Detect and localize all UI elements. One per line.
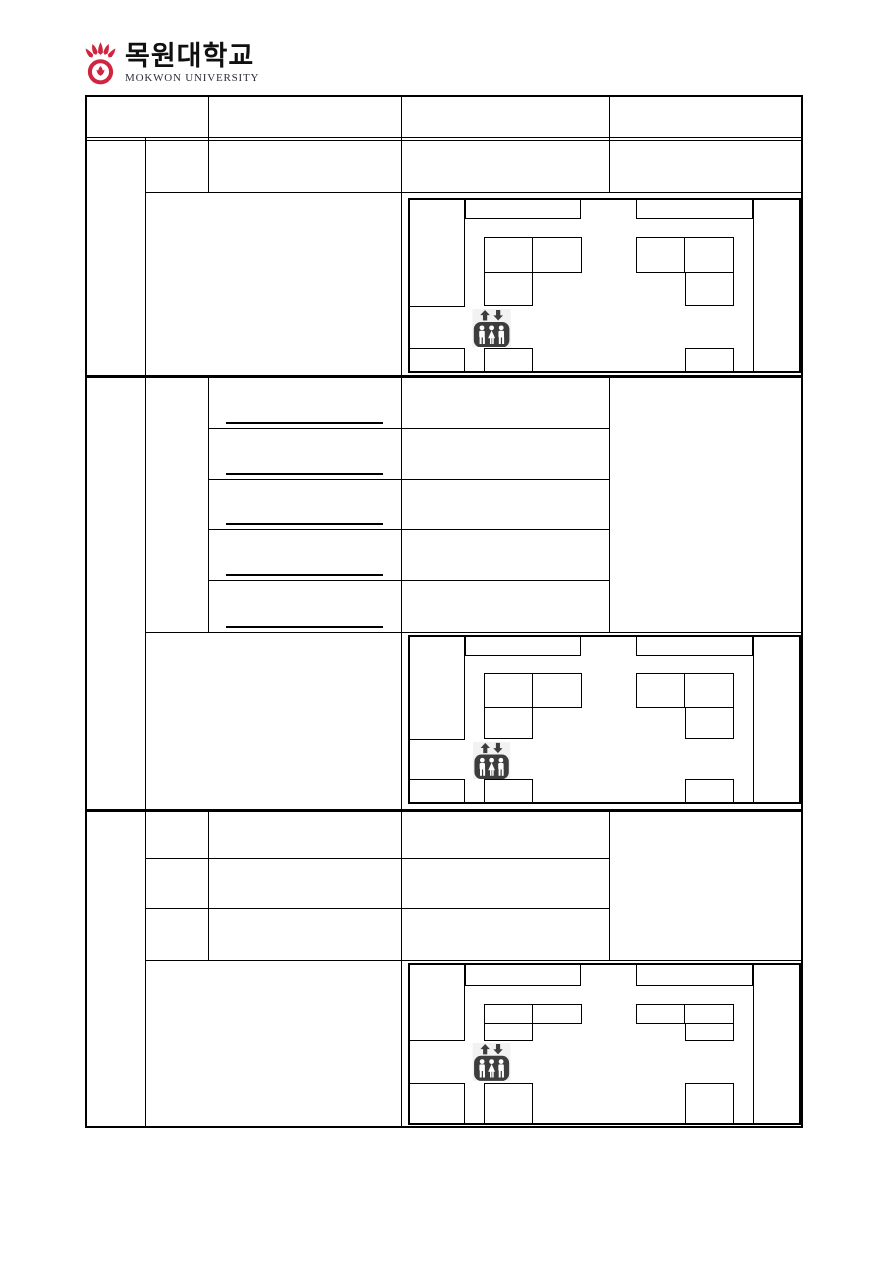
- section-separator-line: [87, 375, 801, 378]
- room-box: [484, 1023, 533, 1041]
- room-box: [685, 707, 734, 739]
- blank-underline-field: [226, 574, 383, 576]
- room-box: [484, 673, 533, 708]
- room-box: [484, 707, 533, 739]
- room-box: [636, 637, 752, 656]
- room-box: [484, 1083, 533, 1123]
- elevator-icon: [471, 309, 512, 347]
- blank-underline-field: [226, 523, 383, 525]
- room-box: [636, 237, 684, 273]
- elevator-icon: [471, 1043, 512, 1081]
- room-box: [636, 673, 684, 708]
- room-box: [753, 637, 799, 802]
- room-box: [636, 200, 752, 219]
- room-box: [410, 1083, 465, 1123]
- university-name-korean: 목원대학교: [125, 42, 259, 70]
- section-separator-line: [87, 809, 801, 812]
- blank-underline-field: [226, 473, 383, 475]
- room-box: [753, 200, 799, 371]
- header-separator-line: [87, 137, 801, 138]
- room-box: [685, 348, 734, 372]
- floor-plan-1: [408, 198, 801, 373]
- grid-line: [145, 908, 610, 909]
- room-box: [410, 779, 465, 802]
- grid-line: [609, 375, 610, 632]
- grid-line: [208, 529, 610, 530]
- room-box: [410, 965, 465, 1041]
- room-box: [484, 348, 533, 372]
- room-box: [484, 1004, 533, 1024]
- grid-line: [145, 192, 801, 193]
- room-box: [484, 273, 533, 306]
- floor-plan-3: [408, 963, 801, 1125]
- grid-line: [145, 960, 801, 961]
- grid-line: [208, 97, 209, 192]
- blank-underline-field: [226, 422, 383, 424]
- grid-line: [609, 97, 610, 192]
- grid-line: [609, 809, 610, 960]
- grid-line: [401, 97, 402, 1126]
- room-box: [465, 965, 581, 986]
- room-box: [685, 779, 734, 802]
- form-table: [85, 95, 803, 1128]
- room-box: [685, 1004, 734, 1024]
- blank-underline-field: [226, 626, 383, 628]
- room-box: [484, 237, 533, 273]
- grid-line: [145, 858, 610, 859]
- room-box: [685, 1083, 734, 1123]
- room-box: [685, 1023, 734, 1041]
- university-emblem-icon: [84, 42, 117, 89]
- grid-line: [145, 632, 801, 633]
- floor-plan-2: [408, 635, 801, 804]
- room-box: [484, 779, 533, 802]
- room-box: [636, 1004, 684, 1024]
- grid-line: [208, 580, 610, 581]
- room-box: [753, 965, 799, 1123]
- room-box: [533, 673, 581, 708]
- room-box: [465, 200, 581, 219]
- grid-line: [208, 428, 610, 429]
- room-box: [685, 673, 734, 708]
- room-box: [410, 637, 465, 740]
- room-box: [685, 273, 734, 306]
- university-logo: 목원대학교 MOKWON UNIVERSITY: [84, 42, 259, 89]
- room-box: [410, 200, 465, 307]
- grid-line: [208, 375, 209, 632]
- header-separator-line: [87, 140, 801, 141]
- room-box: [533, 237, 581, 273]
- room-box: [465, 637, 581, 656]
- grid-line: [208, 479, 610, 480]
- document-page: 목원대학교 MOKWON UNIVERSITY: [0, 0, 893, 1262]
- room-box: [636, 965, 752, 986]
- university-name-english: MOKWON UNIVERSITY: [125, 72, 259, 84]
- elevator-icon: [471, 742, 512, 779]
- room-box: [410, 348, 465, 372]
- room-box: [533, 1004, 581, 1024]
- room-box: [685, 237, 734, 273]
- grid-line: [208, 809, 209, 960]
